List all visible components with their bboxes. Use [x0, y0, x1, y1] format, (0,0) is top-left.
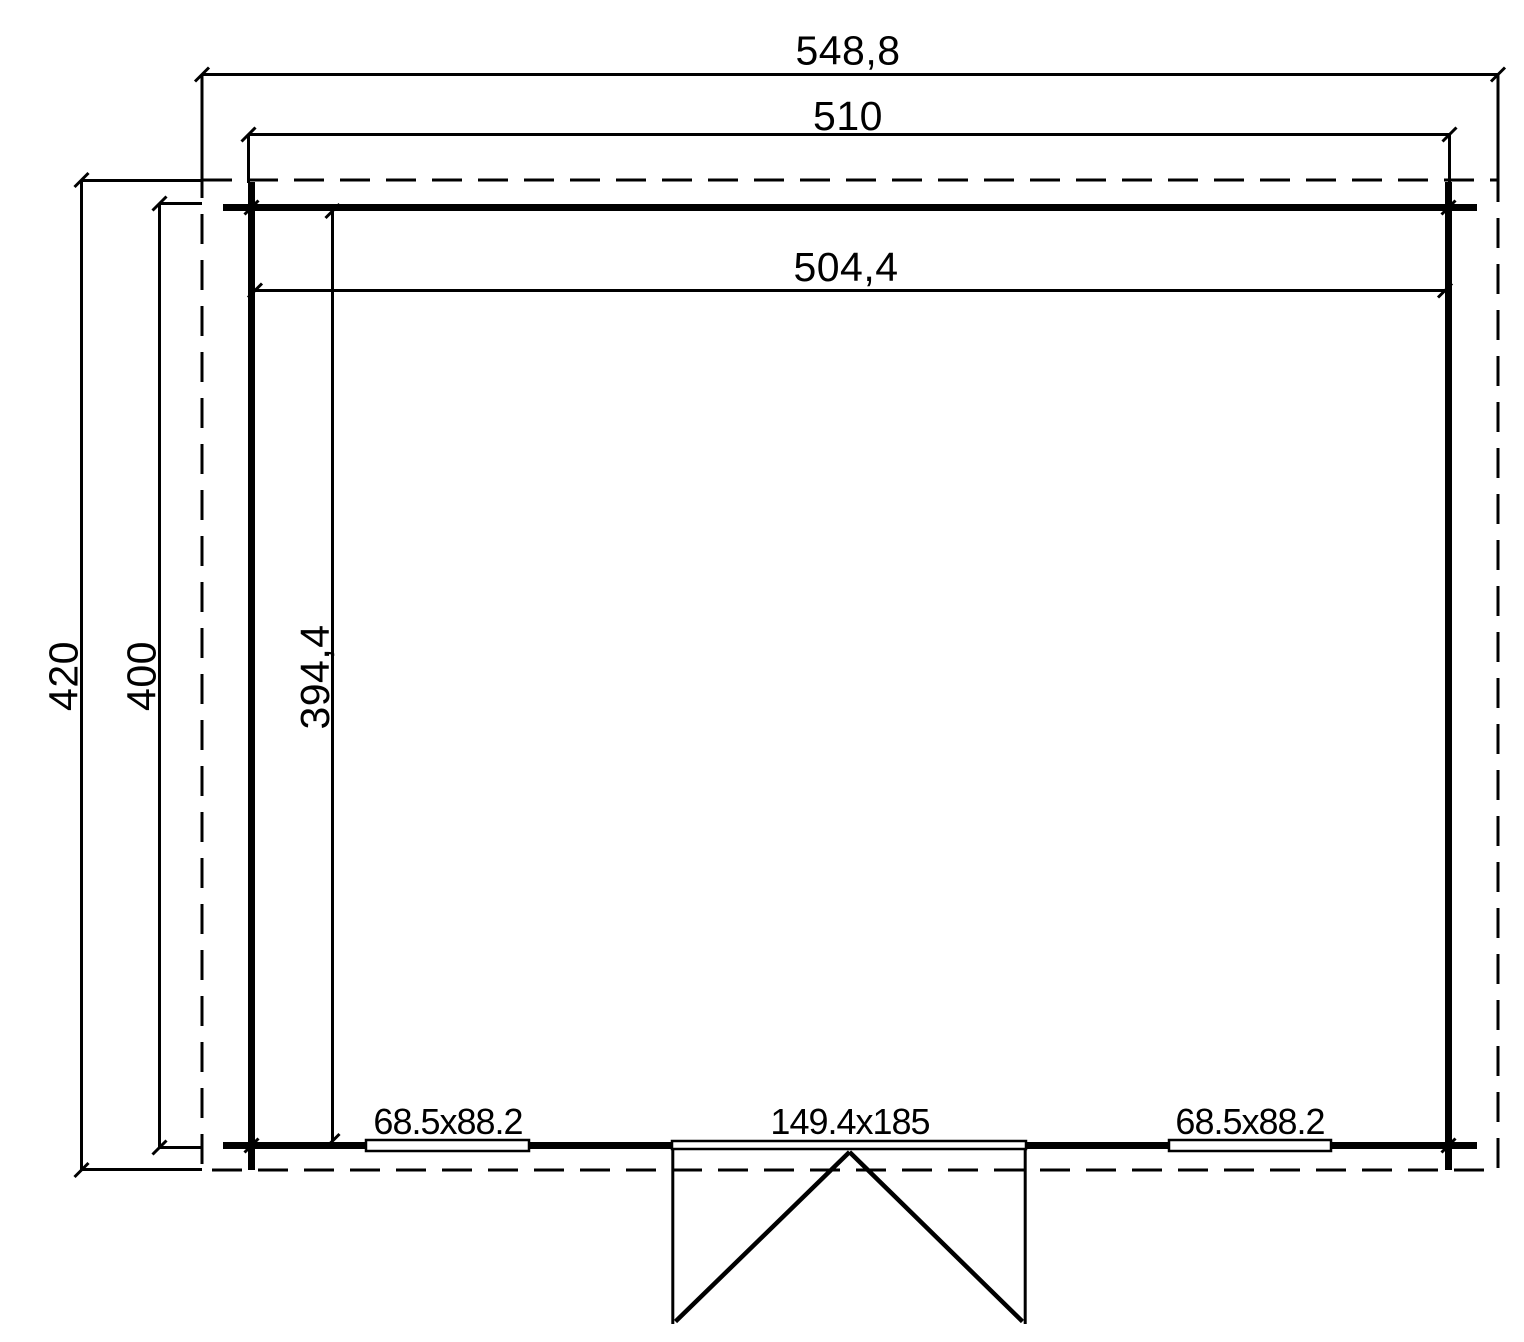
wall-depth-label: 400 — [119, 641, 165, 711]
door-leaf-right — [850, 1152, 1023, 1322]
door-leaf-left — [676, 1152, 850, 1322]
floor-plan-page: 548,8 510 504,4 420 400 394,4 68.5x88.2 … — [0, 0, 1524, 1337]
door-frame — [672, 1141, 1026, 1149]
interior-width-label: 504,4 — [793, 244, 898, 290]
floor-plan-canvas: 548,8 510 504,4 420 400 394,4 68.5x88.2 … — [0, 0, 1524, 1337]
window-right-size-label: 68.5x88.2 — [1175, 1101, 1324, 1142]
door-size-label: 149.4x185 — [770, 1101, 929, 1142]
wall-width-label: 510 — [813, 93, 883, 139]
roof-overhang-outline — [202, 180, 1498, 1170]
window-left-size-label: 68.5x88.2 — [373, 1101, 522, 1142]
roof-width-label: 548,8 — [795, 28, 900, 74]
dimension-ticks — [75, 68, 1506, 1178]
interior-depth-label: 394,4 — [292, 624, 338, 729]
roof-depth-label: 420 — [41, 641, 87, 711]
